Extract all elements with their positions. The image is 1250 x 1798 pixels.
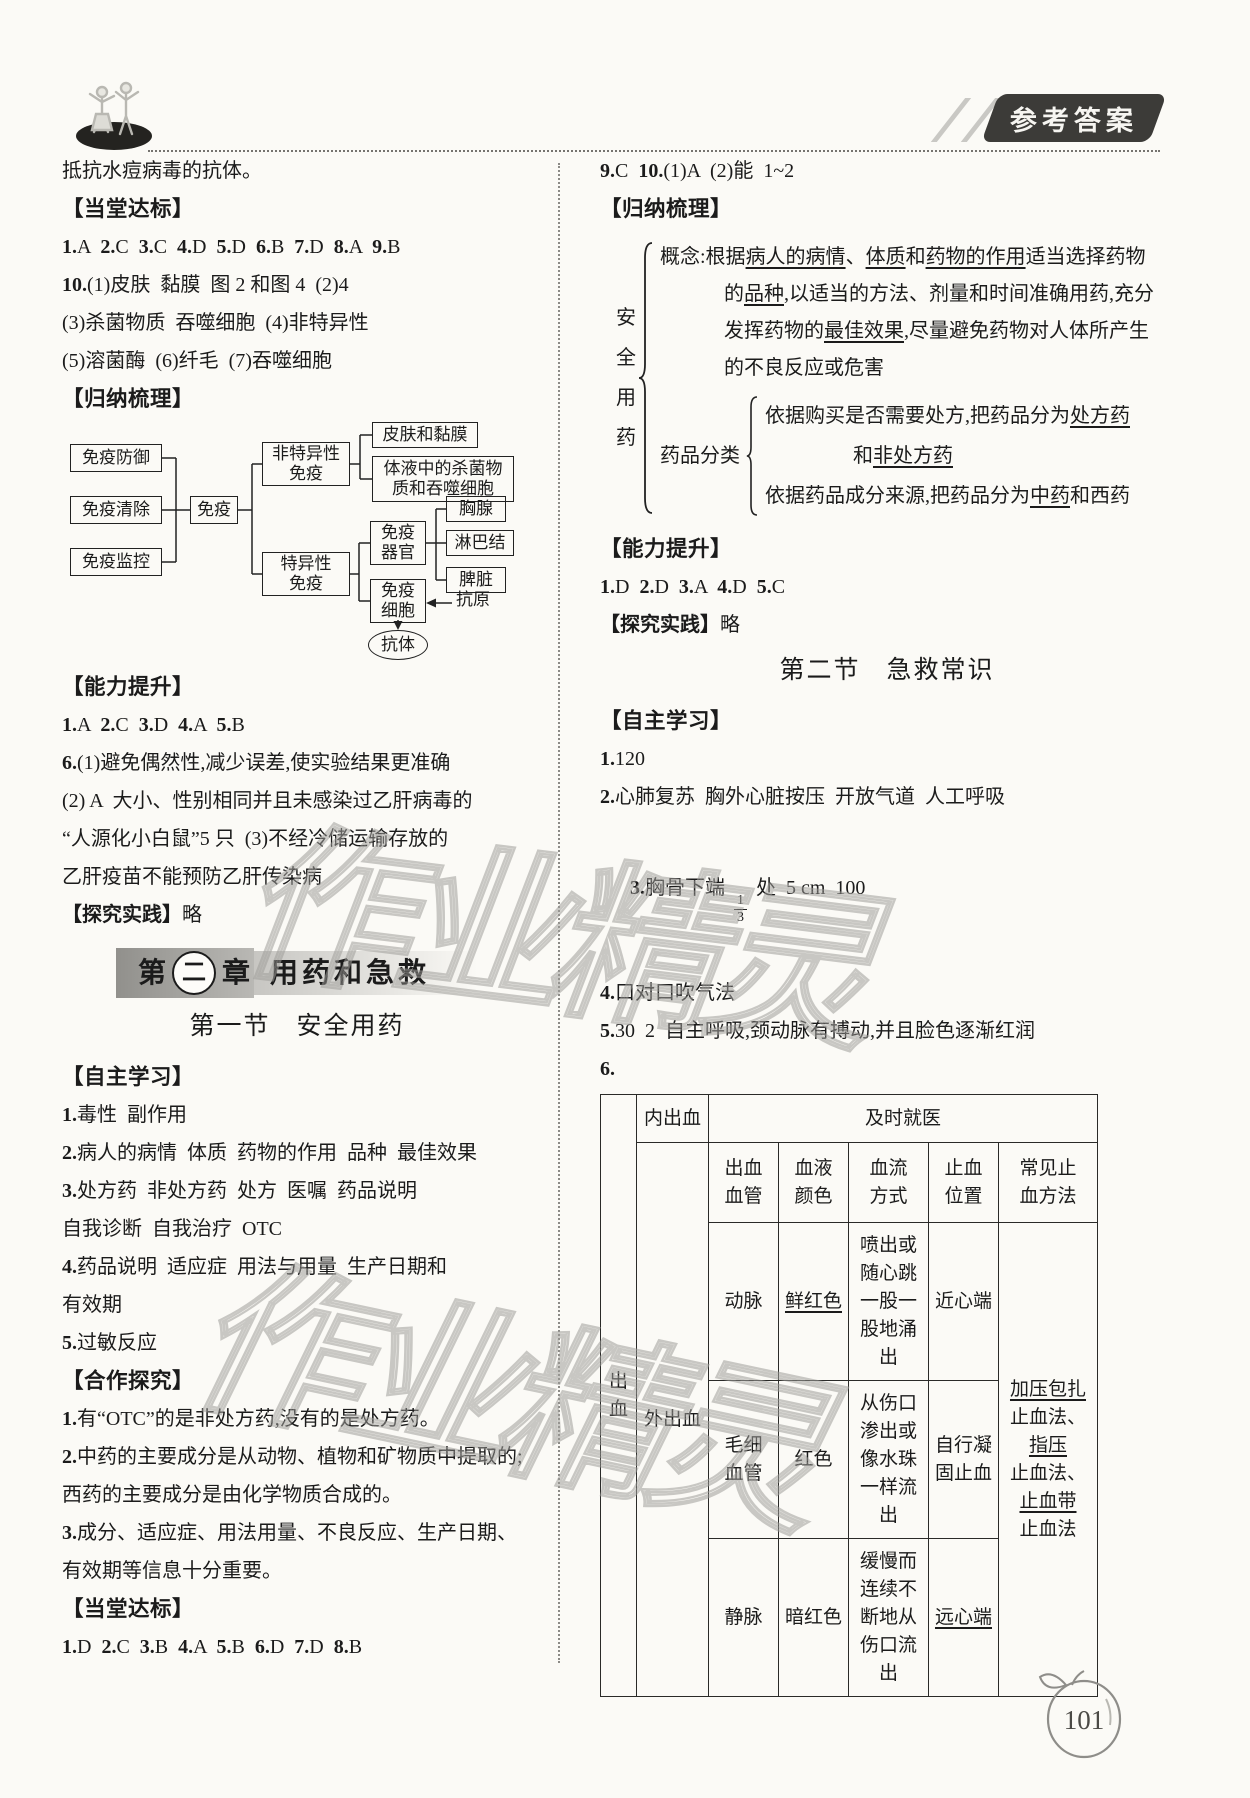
text-segment: 3. xyxy=(140,1636,155,1658)
section-header-zizhu: 【自主学习】 xyxy=(62,1058,532,1096)
text-segment: D xyxy=(270,1636,294,1658)
bleeding-first-aid-table: 出血 内出血 及时就医 外出血 出血 血管 血液 颜色 血流 方式 止血 位置 … xyxy=(600,1094,1098,1697)
text-segment: 药品说明 适应症 用法与用量 生产日期和 xyxy=(77,1256,447,1278)
text-segment: 处方药 xyxy=(1070,405,1130,427)
cell-flow: 从伤口渗出或像水珠一样流出 xyxy=(849,1381,929,1539)
text-segment: (1)皮肤 黏膜 图 2 和图 4 (2)4 xyxy=(87,274,349,296)
chapter-number-band: 第二章 xyxy=(116,948,254,998)
cell-color: 鲜红色 xyxy=(779,1223,849,1381)
text-segment: 略 xyxy=(182,904,202,926)
answer-text-line: 5.过敏反应 xyxy=(62,1324,532,1362)
fraction-line-post: 处 5 cm 100 xyxy=(751,877,865,899)
text-segment: C xyxy=(115,714,138,736)
section-header-tanjiu: 【探究实践】略 xyxy=(600,606,1174,644)
text-segment: 有“OTC”的是非处方药,没有的是处方药。 xyxy=(77,1408,440,1430)
text-segment: 2. xyxy=(101,1636,116,1658)
text-segment: C xyxy=(115,236,138,258)
drug-classification-row: 药品分类 依据购买是否需要处方,把药品分为处方药 和非处方药 依据药品成分来源,… xyxy=(660,395,1160,517)
text-segment: 5. xyxy=(62,1332,77,1354)
text-segment: (1)避免偶然性,减少误差,使实验结果更准确 xyxy=(77,752,450,774)
text-segment: 4. xyxy=(600,982,615,1004)
cell-vessel: 动脉 xyxy=(709,1223,779,1381)
cell-internal-bleeding: 内出血 xyxy=(637,1095,709,1143)
answer-text-line: (2) A 大小、性别相同并且未感染过乙肝病毒的 xyxy=(62,782,532,820)
chapter-pre: 第 xyxy=(138,954,166,992)
text-segment: 止血法、 xyxy=(1010,1463,1086,1484)
text-segment: 中药 xyxy=(1030,485,1070,507)
answer-text-line: 1.毒性 副作用 xyxy=(62,1096,532,1134)
text-segment: 依据购买是否需要处方,把药品分为 xyxy=(765,405,1070,427)
text-segment: 2. xyxy=(62,1142,77,1164)
cell-position: 近心端 xyxy=(929,1223,999,1381)
text-segment: A xyxy=(694,576,717,598)
page-number: 101 xyxy=(1064,1705,1105,1735)
chapter-title: 用药和急救 xyxy=(254,951,478,995)
text-segment: 病人的病情 体质 药物的作用 品种 最佳效果 xyxy=(77,1142,477,1164)
section-header-nengli: 【能力提升】 xyxy=(600,530,1174,568)
classification-line: 依据药品成分来源,把药品分为中药和西药 xyxy=(765,476,1160,516)
text-segment: 1. xyxy=(600,748,615,770)
text-segment: 红色 xyxy=(794,1449,832,1470)
text-segment: 2. xyxy=(600,786,615,808)
text-segment: C xyxy=(772,576,785,598)
text-segment: 8. xyxy=(334,1636,349,1658)
text-segment: A xyxy=(193,714,216,736)
text-line: 抵抗水痘病毒的抗体。 xyxy=(62,152,532,190)
text-segment: 3. xyxy=(139,236,154,258)
section-header-zizhu: 【自主学习】 xyxy=(600,702,1174,740)
text-segment: 7. xyxy=(294,236,309,258)
text-segment: A xyxy=(193,1636,216,1658)
text-segment: A xyxy=(77,236,100,258)
text-segment: D xyxy=(732,576,756,598)
answers-line: 1.D 2.D 3.A 4.D 5.C xyxy=(600,568,1174,606)
node-antibody: 抗体 xyxy=(368,630,428,660)
text-segment: A xyxy=(77,714,100,736)
text-segment: 自行凝固止血 xyxy=(935,1435,992,1484)
text-segment: 5. xyxy=(600,1020,615,1042)
node-immune-surveillance: 免疫监控 xyxy=(70,548,162,576)
text-segment: 4. xyxy=(178,714,193,736)
right-column: 9.C 10.(1)A (2)能 1~2 【归纳梳理】 安全用药 概念:根据病人… xyxy=(600,152,1174,1697)
node-thymus: 胸腺 xyxy=(446,496,506,522)
answers-line: 1.A 2.C 3.C 4.D 5.D 6.B 7.D 8.A 9.B xyxy=(62,228,532,266)
text-segment: 30 2 自主呼吸,颈动脉有搏动,并且脸色逐渐红润 xyxy=(615,1020,1035,1042)
dancers-logo-icon xyxy=(72,80,158,152)
cell-vessel: 静脉 xyxy=(709,1539,779,1697)
classification-label: 药品分类 xyxy=(660,437,746,475)
section-header-guina: 【归纳梳理】 xyxy=(600,190,1174,228)
text-segment: C xyxy=(116,1636,139,1658)
text-segment: 6. xyxy=(255,1636,270,1658)
text-segment: 毒性 副作用 xyxy=(77,1104,187,1126)
classification-line: 和非处方药 xyxy=(853,436,1160,476)
node-specific-immunity: 特异性 免疫 xyxy=(262,552,350,596)
immunity-concept-map: 免疫防御 免疫清除 免疫监控 免疫 非特异性 免疫 皮肤和黏膜 体液中的杀菌物 … xyxy=(62,422,532,666)
text-segment: 过敏反应 xyxy=(77,1332,157,1354)
badge-label: 参考答案 xyxy=(1010,99,1138,138)
chapter-heading: 第二章用药和急救 xyxy=(62,948,532,1000)
label-antigen: 抗原 xyxy=(456,590,490,610)
fraction-denominator: 3 xyxy=(734,909,747,926)
section-header-tanjiu: 【探究实践】略 xyxy=(62,896,532,934)
classification-lines: 依据购买是否需要处方,把药品分为处方药 和非处方药 依据药品成分来源,把药品分为… xyxy=(765,396,1160,516)
cell-color: 红色 xyxy=(779,1381,849,1539)
text-segment: C xyxy=(615,160,638,182)
left-column: 抵抗水痘病毒的抗体。 【当堂达标】 1.A 2.C 3.C 4.D 5.D 6.… xyxy=(62,152,532,1666)
text-segment: 止血带 xyxy=(1019,1491,1076,1512)
column-divider xyxy=(558,163,560,1663)
text-segment: 3. xyxy=(62,1180,77,1202)
answers-line: 1.A 2.C 3.D 4.A 5.B xyxy=(62,706,532,744)
text-segment: 10. xyxy=(62,274,87,296)
text-segment: 和 xyxy=(853,445,873,467)
reference-answers-badge: 参考答案 xyxy=(981,94,1166,142)
text-segment: B xyxy=(271,236,294,258)
chapter-post: 章 xyxy=(222,954,250,992)
text-segment: 药物的作用 xyxy=(926,246,1026,268)
col-header-blood-color: 血液 颜色 xyxy=(779,1143,849,1223)
col-header-vessel: 出血 血管 xyxy=(709,1143,779,1223)
answer-text-line-fraction: 3.胸骨下端 13 处 5 cm 100 xyxy=(600,816,1174,974)
answer-text-line: 有效期 xyxy=(62,1286,532,1324)
text-segment: 3. xyxy=(62,1522,77,1544)
text-segment: 远心端 xyxy=(935,1607,992,1628)
text-segment: 4. xyxy=(62,1256,77,1278)
text-segment: 2. xyxy=(62,1446,77,1468)
text-segment: B xyxy=(231,714,244,736)
answer-text-line: (5)溶菌酶 (6)纤毛 (7)吞噬细胞 xyxy=(62,342,532,380)
big-brace-icon xyxy=(638,240,654,516)
answer-text-line: 10.(1)皮肤 黏膜 图 2 和图 4 (2)4 xyxy=(62,266,532,304)
section-number: 第二节 xyxy=(779,657,860,684)
answer-text-line: 自我诊断 自我治疗 OTC xyxy=(62,1210,532,1248)
text-segment: 最佳效果 xyxy=(824,320,904,342)
brace-vertical-label: 安全用药 xyxy=(614,298,638,458)
text-segment: B xyxy=(349,1636,362,1658)
node-immune-cells: 免疫 细胞 xyxy=(370,579,426,623)
answer-text-line: 1.有“OTC”的是非处方药,没有的是处方药。 xyxy=(62,1400,532,1438)
table-header-row: 外出血 出血 血管 血液 颜色 血流 方式 止血 位置 常见止 血方法 xyxy=(601,1143,1098,1223)
cell-color: 暗红色 xyxy=(779,1539,849,1697)
text-segment: A xyxy=(349,236,372,258)
cell-external-bleeding: 外出血 xyxy=(637,1143,709,1697)
answer-text-line: 2.心肺复苏 胸外心脏按压 开放气道 人工呼吸 xyxy=(600,778,1174,816)
text-segment: 6. xyxy=(62,752,77,774)
classification-line: 依据购买是否需要处方,把药品分为处方药 xyxy=(765,396,1160,436)
safe-medication-brace-diagram: 安全用药 概念:根据病人的病情、体质和药物的作用适当选择药物的品种,以适当的方法… xyxy=(600,234,1174,522)
text-segment: 和 xyxy=(906,246,926,268)
text-segment: 概念:根据 xyxy=(660,246,746,268)
cell-vessel: 毛细 血管 xyxy=(709,1381,779,1539)
text-segment: D xyxy=(154,714,178,736)
cell-position: 自行凝固止血 xyxy=(929,1381,999,1539)
brace-content: 概念:根据病人的病情、体质和药物的作用适当选择药物的品种,以适当的方法、剂量和时… xyxy=(660,239,1160,517)
answer-text-line: 6. xyxy=(600,1050,1174,1088)
section-heading-1: 第一节安全用药 xyxy=(62,1012,532,1042)
cell-stop-methods: 加压包扎 止血法、 指压 止血法、 止血带 止血法 xyxy=(999,1223,1098,1697)
answer-text-line: (3)杀菌物质 吞噬细胞 (4)非特异性 xyxy=(62,304,532,342)
text-segment: 成分、适应症、用法用量、不良反应、生产日期、有效期等信息十分重要。 xyxy=(62,1522,517,1582)
text-segment: D xyxy=(192,236,216,258)
text-segment: D xyxy=(231,236,255,258)
text-segment: 3. xyxy=(679,576,694,598)
text-segment: 4. xyxy=(177,236,192,258)
text-segment: 、 xyxy=(846,246,866,268)
cell-position: 远心端 xyxy=(929,1539,999,1697)
text-segment: B xyxy=(155,1636,178,1658)
text-segment: 止血法 xyxy=(1019,1519,1076,1540)
text-segment: 5. xyxy=(757,576,772,598)
section-title: 安全用药 xyxy=(297,1013,405,1040)
text-segment: 4. xyxy=(178,1636,193,1658)
text-segment: 2. xyxy=(100,714,115,736)
text-segment: 非处方药 xyxy=(873,445,953,467)
text-segment: 略 xyxy=(720,614,740,636)
cell-flow: 喷出或随心跳一股一股地涌出 xyxy=(849,1223,929,1381)
fraction-line-pre: 3.胸骨下端 xyxy=(630,877,730,899)
answer-text-line: 乙肝疫苗不能预防乙肝传染病 xyxy=(62,858,532,896)
chapter-number-circle: 二 xyxy=(172,951,216,995)
text-segment: 指压 xyxy=(1029,1435,1067,1456)
answer-text-line: 4.药品说明 适应症 用法与用量 生产日期和 xyxy=(62,1248,532,1286)
text-segment: 1. xyxy=(62,1104,77,1126)
fraction-numerator: 1 xyxy=(734,893,747,909)
answer-key-page: 参考答案 抵抗水痘病毒的抗体。 【当堂达标】 1.A 2.C 3.C 4.D 5… xyxy=(0,0,1250,1798)
text-segment: D xyxy=(654,576,678,598)
text-segment: 病人的病情 xyxy=(746,246,846,268)
text-segment: 1. xyxy=(600,576,615,598)
section-title: 急救常识 xyxy=(887,657,995,684)
text-segment: 8. xyxy=(334,236,349,258)
text-segment: 心肺复苏 胸外心脏按压 开放气道 人工呼吸 xyxy=(615,786,1005,808)
text-segment: D xyxy=(309,236,333,258)
node-nonspecific-immunity: 非特异性 免疫 xyxy=(262,442,350,486)
cell-bleeding: 出血 xyxy=(601,1095,637,1697)
node-immunity: 免疫 xyxy=(190,496,238,524)
text-segment: 止血法、 xyxy=(1010,1407,1086,1428)
answer-text-line: 2.病人的病情 体质 药物的作用 品种 最佳效果 xyxy=(62,1134,532,1172)
section-number: 第一节 xyxy=(189,1013,270,1040)
answer-text-line: 6.(1)避免偶然性,减少误差,使实验结果更准确 xyxy=(62,744,532,782)
text-segment: 【探究实践】 xyxy=(600,614,720,636)
answer-text-line: 5.30 2 自主呼吸,颈动脉有搏动,并且脸色逐渐红润 xyxy=(600,1012,1174,1050)
text-segment: 3. xyxy=(630,877,645,899)
text-segment: 120 xyxy=(615,748,645,770)
section-header-guina: 【归纳梳理】 xyxy=(62,380,532,418)
text-segment: (1)A (2)能 1~2 xyxy=(663,160,794,182)
text-segment: 和西药 xyxy=(1070,485,1130,507)
text-segment: B xyxy=(387,236,400,258)
cell-flow: 缓慢而连续不断地从伤口流出 xyxy=(849,1539,929,1697)
answer-text-line: 1.120 xyxy=(600,740,1174,778)
section-header-dangtang: 【当堂达标】 xyxy=(62,190,532,228)
text-segment: 4. xyxy=(717,576,732,598)
text-segment: 2. xyxy=(639,576,654,598)
answer-text-line: 3.成分、适应症、用法用量、不良反应、生产日期、有效期等信息十分重要。 xyxy=(62,1514,532,1590)
node-immune-defense: 免疫防御 xyxy=(70,444,162,472)
text-segment: 1. xyxy=(62,1636,77,1658)
page-number-doodle: 101 xyxy=(1032,1655,1142,1773)
section-header-hezuo: 【合作探究】 xyxy=(62,1362,532,1400)
answer-text-line: 2.中药的主要成分是从动物、植物和矿物质中提取的;西药的主要成分是由化学物质合成… xyxy=(62,1438,532,1514)
node-lymph-node: 淋巴结 xyxy=(446,530,514,556)
section-heading-2: 第二节急救常识 xyxy=(600,656,1174,686)
text-segment: 1. xyxy=(62,1408,77,1430)
text-segment: 近心端 xyxy=(935,1291,992,1312)
text-segment: D xyxy=(309,1636,333,1658)
fraction-one-third: 13 xyxy=(734,893,747,926)
text-segment: 7. xyxy=(294,1636,309,1658)
text-segment: 9. xyxy=(372,236,387,258)
text-segment: 6. xyxy=(256,236,271,258)
node-immune-clearance: 免疫清除 xyxy=(70,496,162,524)
text-segment: 胸骨下端 xyxy=(645,877,730,899)
text-segment: 6. xyxy=(600,1058,615,1080)
text-segment: 1. xyxy=(62,714,77,736)
text-segment: 3. xyxy=(139,714,154,736)
cell-seek-medical: 及时就医 xyxy=(709,1095,1098,1143)
text-segment: 鲜红色 xyxy=(785,1291,842,1312)
text-segment: 中药的主要成分是从动物、植物和矿物质中提取的;西药的主要成分是由化学物质合成的。 xyxy=(62,1446,523,1506)
node-immune-organs: 免疫 器官 xyxy=(370,521,426,565)
text-segment: 品种 xyxy=(744,283,784,305)
section-header-dangtang2: 【当堂达标】 xyxy=(62,1590,532,1628)
text-segment: 1. xyxy=(62,236,77,258)
section-header-nengli: 【能力提升】 xyxy=(62,668,532,706)
text-segment: 2. xyxy=(100,236,115,258)
text-segment: 加压包扎 xyxy=(1010,1379,1086,1400)
answer-text-line: “人源化小白鼠”5 只 (3)不经冷储运输存放的 xyxy=(62,820,532,858)
table-row: 出血 内出血 及时就医 xyxy=(601,1095,1098,1143)
text-segment: 5. xyxy=(216,1636,231,1658)
text-segment: D xyxy=(615,576,639,598)
text-segment: 5. xyxy=(216,236,231,258)
text-segment: 【探究实践】 xyxy=(62,904,182,926)
text-segment: 处方药 非处方药 处方 医嘱 药品说明 xyxy=(77,1180,417,1202)
text-segment: 10. xyxy=(638,160,663,182)
text-segment: 口对口吹气法 xyxy=(615,982,735,1004)
answer-text-line: 4.口对口吹气法 xyxy=(600,974,1174,1012)
text-segment: 5. xyxy=(216,714,231,736)
answers-line: 1.D 2.C 3.B 4.A 5.B 6.D 7.D 8.B xyxy=(62,1628,532,1666)
answers-line: 9.C 10.(1)A (2)能 1~2 xyxy=(600,152,1174,190)
col-header-common-methods: 常见止 血方法 xyxy=(999,1143,1098,1223)
text-segment: 9. xyxy=(600,160,615,182)
node-skin-mucosa: 皮肤和黏膜 xyxy=(372,422,478,448)
col-header-stop-position: 止血 位置 xyxy=(929,1143,999,1223)
small-brace-icon xyxy=(746,395,759,517)
text-segment: D xyxy=(77,1636,101,1658)
answer-text-line: 3.处方药 非处方药 处方 医嘱 药品说明 xyxy=(62,1172,532,1210)
concept-paragraph: 概念:根据病人的病情、体质和药物的作用适当选择药物的品种,以适当的方法、剂量和时… xyxy=(660,239,1160,387)
text-segment: C xyxy=(154,236,177,258)
text-segment: 依据药品成分来源,把药品分为 xyxy=(765,485,1030,507)
text-segment: 体质 xyxy=(866,246,906,268)
text-segment: B xyxy=(231,1636,254,1658)
col-header-flow-manner: 血流 方式 xyxy=(849,1143,929,1223)
text-segment: 暗红色 xyxy=(785,1607,842,1628)
